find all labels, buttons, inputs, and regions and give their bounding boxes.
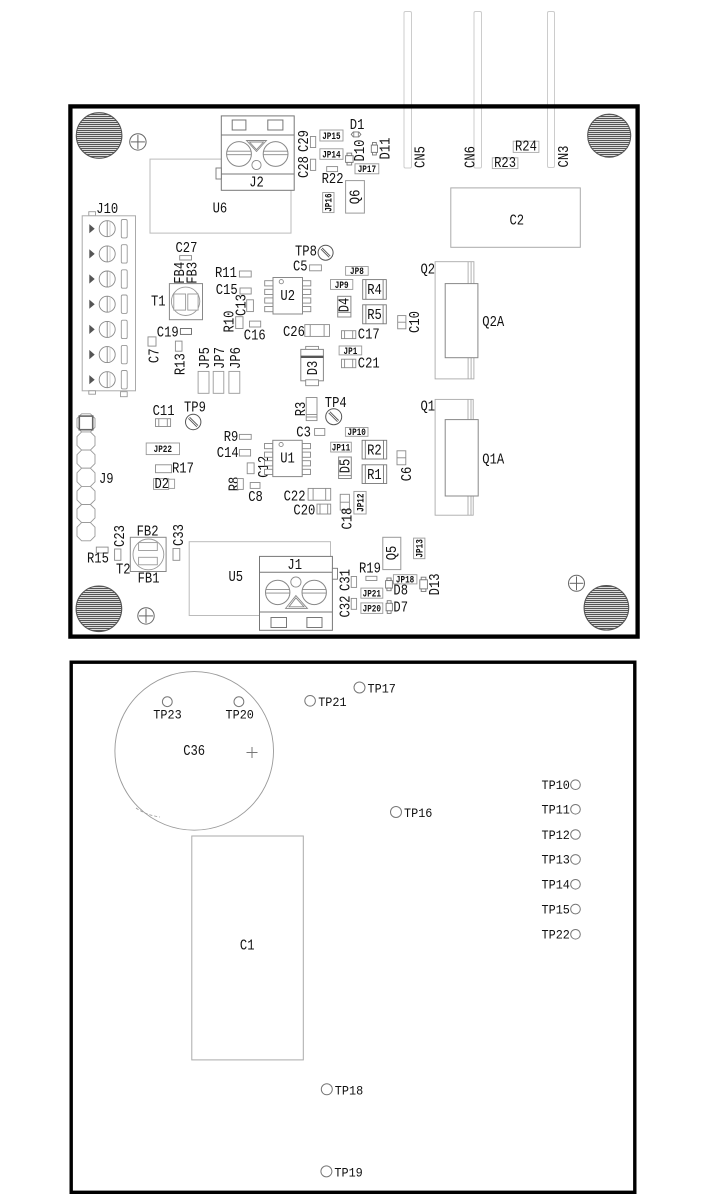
svg-text:JP17: JP17 — [358, 164, 376, 176]
svg-text:JP9: JP9 — [335, 280, 349, 292]
svg-text:Q2: Q2 — [421, 263, 436, 279]
svg-text:C19: C19 — [157, 326, 179, 342]
svg-text:J9: J9 — [99, 472, 114, 488]
svg-text:C16: C16 — [244, 329, 266, 345]
svg-text:TP20: TP20 — [226, 708, 254, 723]
svg-text:C10: C10 — [408, 311, 424, 333]
svg-text:C26: C26 — [283, 325, 305, 341]
svg-text:J1: J1 — [287, 558, 302, 574]
svg-text:C11: C11 — [153, 404, 175, 420]
svg-text:C8: C8 — [248, 490, 263, 506]
svg-text:R24: R24 — [515, 140, 537, 156]
svg-text:TP23: TP23 — [153, 708, 181, 723]
svg-text:TP8: TP8 — [295, 245, 317, 261]
svg-text:JP16: JP16 — [324, 193, 336, 211]
svg-text:JP8: JP8 — [350, 266, 364, 278]
svg-text:CN6: CN6 — [463, 146, 479, 168]
svg-text:Q6: Q6 — [349, 190, 365, 205]
svg-text:R11: R11 — [215, 266, 237, 282]
svg-text:TP19: TP19 — [334, 1166, 362, 1181]
svg-text:J2: J2 — [249, 176, 264, 192]
svg-text:Q1: Q1 — [421, 400, 436, 416]
svg-text:C20: C20 — [293, 504, 315, 520]
svg-text:C6: C6 — [400, 467, 416, 482]
svg-text:TP18: TP18 — [335, 1084, 363, 1099]
svg-text:C14: C14 — [217, 446, 239, 462]
svg-text:R19: R19 — [359, 562, 381, 578]
svg-text:TP10: TP10 — [542, 778, 570, 793]
svg-text:C1: C1 — [240, 939, 255, 955]
svg-text:JP6: JP6 — [229, 347, 245, 369]
svg-text:C23: C23 — [113, 525, 129, 547]
svg-text:C7: C7 — [148, 349, 164, 364]
svg-text:TP11: TP11 — [542, 803, 571, 818]
svg-text:C27: C27 — [176, 241, 198, 257]
svg-text:C3: C3 — [296, 425, 311, 441]
svg-text:U5: U5 — [229, 570, 244, 586]
svg-text:D7: D7 — [393, 601, 408, 617]
svg-text:C2: C2 — [510, 213, 525, 229]
svg-text:T2: T2 — [116, 563, 131, 579]
svg-text:R2: R2 — [367, 443, 382, 459]
svg-text:R22: R22 — [322, 172, 344, 188]
svg-text:U1: U1 — [280, 452, 295, 468]
svg-text:R15: R15 — [87, 552, 109, 568]
svg-text:R5: R5 — [367, 308, 382, 324]
svg-text:Q1A: Q1A — [482, 453, 504, 469]
svg-text:R17: R17 — [172, 462, 194, 478]
svg-text:D1: D1 — [350, 118, 365, 134]
svg-text:CN3: CN3 — [557, 146, 573, 168]
svg-text:C21: C21 — [358, 357, 380, 373]
svg-text:TP12: TP12 — [542, 828, 570, 843]
svg-text:JP12: JP12 — [355, 494, 367, 512]
svg-text:TP15: TP15 — [542, 902, 570, 917]
svg-text:JP1: JP1 — [344, 346, 358, 358]
svg-text:FB1: FB1 — [138, 572, 160, 588]
svg-text:TP13: TP13 — [542, 853, 570, 868]
svg-text:R4: R4 — [367, 283, 382, 299]
svg-text:FB3: FB3 — [186, 262, 202, 284]
svg-text:U6: U6 — [213, 202, 228, 218]
svg-text:C5: C5 — [293, 259, 308, 275]
svg-text:JP14: JP14 — [322, 149, 340, 161]
svg-text:C36: C36 — [183, 744, 205, 760]
svg-text:JP11: JP11 — [332, 442, 350, 454]
svg-text:R13: R13 — [174, 353, 190, 375]
svg-text:JP21: JP21 — [363, 588, 381, 600]
svg-text:R1: R1 — [367, 468, 382, 484]
svg-text:CN5: CN5 — [414, 146, 430, 168]
svg-text:TP16: TP16 — [404, 806, 432, 821]
svg-text:C33: C33 — [172, 524, 188, 546]
svg-text:JP5: JP5 — [198, 347, 214, 369]
svg-text:JP13: JP13 — [415, 539, 427, 557]
svg-text:U2: U2 — [280, 289, 295, 305]
svg-text:R9: R9 — [224, 430, 239, 446]
svg-text:JP22: JP22 — [154, 444, 172, 456]
svg-text:TP17: TP17 — [368, 682, 396, 697]
svg-text:JP15: JP15 — [322, 131, 340, 143]
svg-text:Q2A: Q2A — [482, 315, 504, 331]
svg-text:D3: D3 — [306, 361, 322, 376]
svg-text:C17: C17 — [358, 328, 380, 344]
svg-text:D8: D8 — [393, 584, 408, 600]
svg-text:TP21: TP21 — [318, 695, 347, 710]
svg-text:D10: D10 — [353, 140, 369, 162]
svg-text:JP7: JP7 — [213, 347, 229, 369]
svg-text:R23: R23 — [494, 156, 516, 172]
svg-text:D13: D13 — [428, 573, 444, 595]
svg-text:D4: D4 — [338, 297, 354, 312]
svg-text:Q5: Q5 — [385, 546, 401, 561]
svg-text:T1: T1 — [151, 295, 166, 311]
svg-text:D2: D2 — [155, 477, 170, 493]
svg-text:D5: D5 — [338, 459, 354, 474]
svg-text:JP10: JP10 — [348, 427, 366, 439]
svg-text:TP14: TP14 — [542, 878, 571, 893]
svg-text:TP22: TP22 — [542, 928, 570, 943]
svg-text:D11: D11 — [378, 137, 394, 159]
svg-text:JP20: JP20 — [363, 603, 381, 615]
